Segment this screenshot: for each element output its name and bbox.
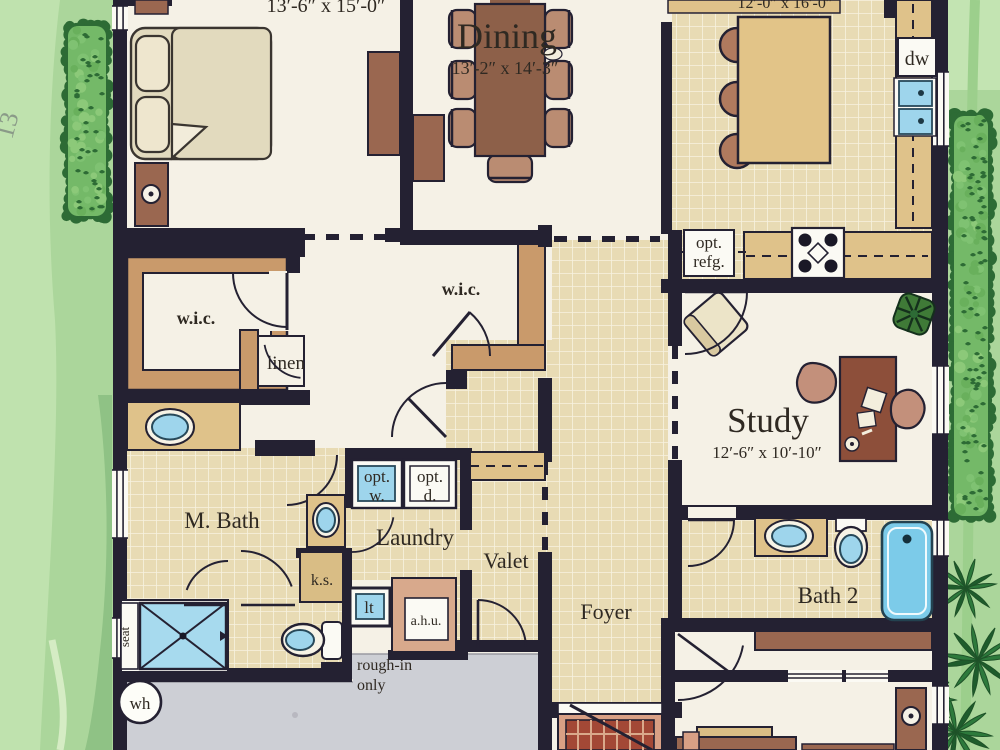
svg-text:a.h.u.: a.h.u. — [411, 614, 442, 629]
svg-text:opt.: opt. — [364, 467, 390, 486]
svg-text:wh: wh — [130, 694, 151, 713]
svg-text:opt.: opt. — [696, 233, 722, 252]
svg-text:Foyer: Foyer — [580, 599, 632, 624]
svg-text:rough-in: rough-in — [357, 657, 412, 674]
svg-text:Study: Study — [727, 401, 809, 440]
svg-text:12′-0″ x 16′-0″: 12′-0″ x 16′-0″ — [738, 0, 833, 12]
svg-text:d.: d. — [424, 486, 437, 505]
svg-text:Bath 2: Bath 2 — [798, 583, 859, 608]
svg-text:opt.: opt. — [417, 467, 443, 486]
svg-text:13′-2″ x 14′-3″: 13′-2″ x 14′-3″ — [452, 58, 559, 78]
svg-text:M. Bath: M. Bath — [184, 508, 260, 533]
svg-text:dw: dw — [905, 48, 930, 70]
svg-text:Laundry: Laundry — [376, 525, 454, 550]
svg-text:only: only — [357, 677, 385, 694]
svg-text:lt: lt — [364, 598, 374, 617]
svg-text:w.i.c.: w.i.c. — [177, 308, 216, 328]
svg-text:Valet: Valet — [483, 548, 528, 573]
svg-text:12′-6″ x 10′-10″: 12′-6″ x 10′-10″ — [712, 443, 821, 462]
svg-text:Dining: Dining — [457, 16, 557, 56]
svg-text:k.s.: k.s. — [311, 572, 333, 589]
svg-text:w.: w. — [369, 486, 384, 505]
svg-text:13′-6″ x 15′-0″: 13′-6″ x 15′-0″ — [267, 0, 386, 17]
svg-text:seat: seat — [117, 627, 132, 648]
svg-text:refg.: refg. — [693, 252, 725, 271]
svg-text:w.i.c.: w.i.c. — [442, 279, 481, 299]
